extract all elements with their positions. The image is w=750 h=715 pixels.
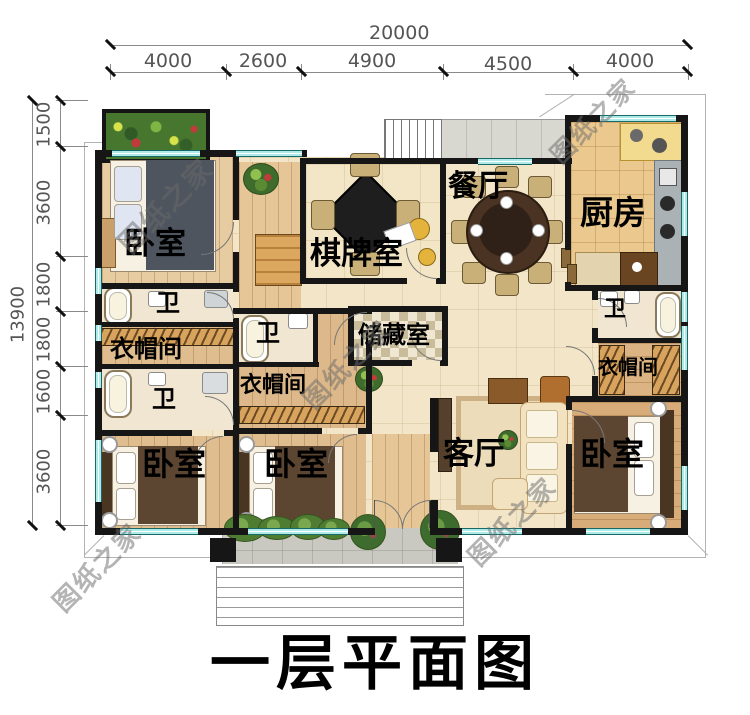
room-label-bathroom-3: 卫 xyxy=(256,322,280,346)
bedside-lamp xyxy=(650,400,667,417)
pillow xyxy=(116,452,136,484)
wall-int xyxy=(233,252,239,292)
kitchen-sink-bowl xyxy=(630,129,643,142)
dim-left-seg-4: 1800 xyxy=(34,319,55,363)
room-label-cloakroom-1: 衣帽间 xyxy=(110,338,182,362)
eave-right xyxy=(705,94,706,558)
wall-int xyxy=(592,328,598,340)
wall-int xyxy=(566,444,572,528)
dim-top-seg-5: 4000 xyxy=(595,50,665,72)
wall-int xyxy=(233,362,319,367)
window xyxy=(586,528,650,535)
dim-left-seg-3: 1800 xyxy=(34,264,55,308)
dim-left-seg-6: 3600 xyxy=(34,451,55,495)
kitchen-cabinet-knob xyxy=(632,262,642,272)
window xyxy=(248,528,348,535)
wood-steps xyxy=(255,234,302,286)
plate xyxy=(470,224,483,237)
dining-chair xyxy=(528,176,552,198)
potted-plant xyxy=(243,163,279,195)
wall-int xyxy=(233,428,322,434)
window xyxy=(681,326,688,370)
sink xyxy=(288,313,308,329)
wardrobe xyxy=(239,406,365,424)
staircase xyxy=(384,119,442,160)
wall-chess-left xyxy=(300,158,306,284)
wall-living-left xyxy=(430,398,438,452)
dim-left-total: 13900 xyxy=(8,277,29,353)
room-label-living-room: 客厅 xyxy=(443,438,505,469)
page-title: 一层平面图 xyxy=(0,634,750,694)
bathtub xyxy=(104,370,132,418)
wall-chess-bottom xyxy=(300,278,407,284)
window xyxy=(95,325,102,341)
sink xyxy=(148,372,166,386)
entry-steps xyxy=(216,566,464,626)
wall-int xyxy=(592,338,684,343)
bed-headboard xyxy=(660,410,674,518)
wall-kitchen-bottom xyxy=(565,285,688,291)
wall-int xyxy=(233,155,239,220)
dim-left-seg-1: 1500 xyxy=(34,104,55,148)
dim-left-seg-2: 3600 xyxy=(34,182,55,226)
kitchen-sink-bowl xyxy=(652,138,667,153)
dim-top-seg-2: 2600 xyxy=(228,50,298,72)
room-label-bedroom-right: 卧室 xyxy=(580,438,644,470)
room-label-cloakroom-3: 衣帽间 xyxy=(598,358,658,378)
wall-int xyxy=(566,396,572,410)
plate xyxy=(500,252,513,265)
pillow xyxy=(116,488,136,520)
bedside-lamp xyxy=(101,436,118,453)
dining-chair xyxy=(495,274,519,296)
room-label-bathroom-2: 卫 xyxy=(152,388,176,412)
wall-int xyxy=(95,430,192,436)
window xyxy=(278,150,302,157)
dim-left-seg-5: 1600 xyxy=(34,371,55,415)
dining-table-top xyxy=(479,203,533,257)
room-label-bedroom-bottom-left-1: 卧室 xyxy=(142,448,206,480)
chair xyxy=(350,153,380,177)
wall-chess-right xyxy=(440,158,446,284)
wall-bedroom-right-top xyxy=(566,396,686,402)
room-label-bathroom-4: 卫 xyxy=(604,298,626,320)
eave-diagonal xyxy=(539,94,575,118)
sofa-cushion xyxy=(526,410,558,438)
window xyxy=(478,158,532,165)
wall-int xyxy=(95,364,239,369)
kitchen-appliance xyxy=(659,168,677,186)
bathtub xyxy=(104,287,132,325)
room-label-bathroom-1: 卫 xyxy=(156,292,180,316)
room-label-bedroom-bottom-left-2: 卧室 xyxy=(264,448,328,480)
wall-int xyxy=(95,322,239,327)
wall-int xyxy=(313,308,318,367)
window xyxy=(95,440,102,502)
chair xyxy=(311,200,335,230)
bathtub xyxy=(655,292,681,338)
dim-top-seg-3: 4900 xyxy=(337,50,407,72)
plate xyxy=(532,224,545,237)
dim-top-seg-4: 4500 xyxy=(473,53,543,75)
eave-left xyxy=(84,142,85,558)
window xyxy=(681,466,688,510)
window xyxy=(95,372,102,388)
dim-top-seg-line xyxy=(110,72,688,73)
window xyxy=(95,268,102,294)
porch-column xyxy=(436,538,462,562)
wall-int xyxy=(592,376,598,398)
wall-chess-bottom xyxy=(436,278,446,284)
wall-living-left xyxy=(430,500,438,528)
stove-burner xyxy=(660,196,675,211)
bedside-lamp xyxy=(238,436,255,453)
wall-storage xyxy=(348,306,448,312)
pillow xyxy=(114,166,142,202)
wall-int xyxy=(95,283,239,289)
dim-top-total-line xyxy=(110,45,688,46)
sink xyxy=(624,290,640,304)
window xyxy=(681,192,688,236)
eave-top-left xyxy=(84,142,104,143)
sofa-cushion xyxy=(526,442,558,470)
console-frame xyxy=(488,378,528,404)
room-label-chess-room: 棋牌室 xyxy=(310,238,403,269)
entrance-door-leaf xyxy=(429,500,430,528)
floor-plan-canvas: 20000 4000 2600 4900 4500 4000 13900 150… xyxy=(0,0,750,715)
window xyxy=(681,292,688,322)
room-label-dining-room: 餐厅 xyxy=(448,172,508,202)
sliding-door-leaf xyxy=(567,264,577,284)
dim-top-total: 20000 xyxy=(369,22,429,44)
wall-storage xyxy=(442,306,448,366)
porch-column xyxy=(210,538,236,562)
room-label-kitchen: 厨房 xyxy=(580,196,646,229)
stove-burner xyxy=(660,224,675,239)
dim-top-seg-1: 4000 xyxy=(133,50,203,72)
shower xyxy=(202,372,228,394)
entrance-door-leaf xyxy=(374,500,375,528)
